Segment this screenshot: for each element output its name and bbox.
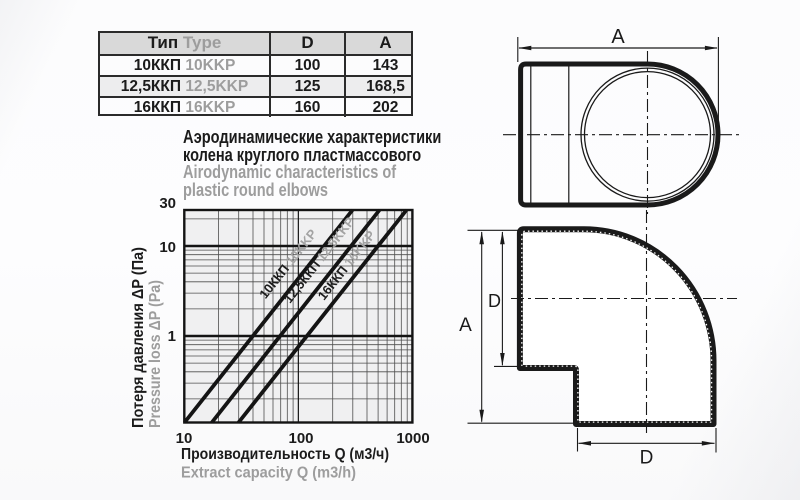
svg-text:30: 30 <box>159 195 176 212</box>
svg-text:D: D <box>640 448 654 469</box>
svg-text:A: A <box>611 26 625 48</box>
svg-text:Pressure loss ΔP (Pa): Pressure loss ΔP (Pa) <box>147 280 164 428</box>
svg-text:10: 10 <box>159 239 176 256</box>
svg-text:1000: 1000 <box>396 430 429 447</box>
svg-text:1: 1 <box>168 328 176 345</box>
svg-text:Потеря давления ΔP (Па): Потеря давления ΔP (Па) <box>130 247 147 428</box>
svg-text:Extract capacity Q (m3/h): Extract capacity Q (m3/h) <box>181 465 356 482</box>
svg-text:D: D <box>488 291 501 311</box>
svg-text:100: 100 <box>288 430 313 447</box>
svg-text:A: A <box>459 315 472 336</box>
svg-text:Производительность Q (м3/ч): Производительность Q (м3/ч) <box>181 446 389 463</box>
svg-text:10: 10 <box>176 430 193 447</box>
